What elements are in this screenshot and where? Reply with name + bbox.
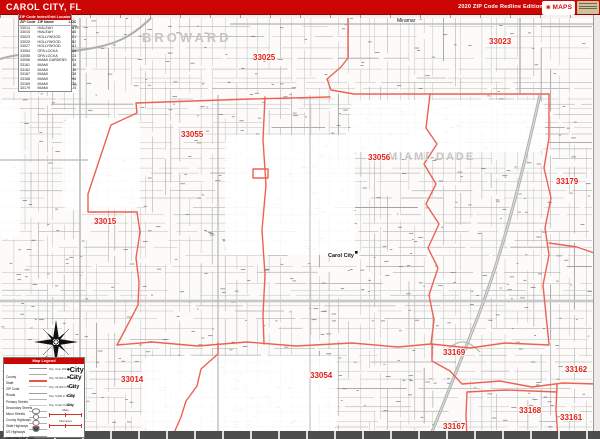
scalebar-kilometers: Kilometers: [49, 420, 82, 429]
zip-label-33056: 33056: [368, 153, 391, 162]
zip-label-33161: 33161: [560, 413, 583, 422]
header-bar: CAROL CITY, FL 2020 ZIP Code Redline Edi…: [0, 0, 600, 15]
zip-label-33015: 33015: [94, 217, 117, 226]
legend-row-toll-roads: Toll Roads: [6, 433, 48, 439]
county-label-broward: BROWARD: [142, 30, 232, 45]
zip-index-row: 33179MIAMIJ4: [19, 86, 77, 91]
scalebar-miles: Miles: [49, 409, 82, 418]
legend-city-item: Pop. 5,000 to 25,000City: [49, 392, 85, 401]
edition-label: 2020 ZIP Code Redline Edition: [458, 4, 543, 10]
zip-label-33023: 33023: [489, 37, 512, 46]
legend-city-item: Pop. Over 250,000•City: [49, 365, 85, 374]
zip-code-wall-map: BROWARDMIAMI-DADEMiramarCarol City330553…: [0, 0, 600, 439]
legend-panel: Map Legend CountyStateZIP CodeRoadsPrima…: [3, 357, 85, 438]
zip-label-33054: 33054: [310, 371, 333, 380]
legend-city-item: Pop. 50,000 to 250,000•City: [49, 374, 85, 383]
publisher-logo: ✷ MAPS: [542, 1, 575, 15]
right-margin-strip: [593, 14, 600, 431]
zip-index-column: LOC: [68, 20, 78, 25]
county-label-miami-dade: MIAMI-DADE: [388, 151, 475, 163]
legend-line-items: CountyStateZIP CodeRoadsPrimary StreetsS…: [6, 365, 48, 439]
zip-label-33162: 33162: [565, 365, 588, 374]
highway-shield-icon: [32, 408, 40, 414]
zip-index-header-row: ZIP CodeZIP NameLOC: [19, 20, 77, 25]
bottom-border-ruler: [0, 431, 600, 439]
city-label-carol-city: Carol City: [328, 253, 355, 259]
zip-label-33167: 33167: [443, 422, 466, 431]
zip-label-33055: 33055: [181, 130, 204, 139]
logo-burst-icon: ✷: [545, 4, 552, 12]
legend-city-item: Pop. 25,000 to 50,000•City: [49, 383, 85, 392]
map-title: CAROL CITY, FL: [6, 2, 81, 12]
legend-city-items: Pop. Over 250,000•CityPop. 50,000 to 250…: [49, 365, 85, 410]
city-label-miramar: Miramar: [397, 18, 416, 24]
legend-title: Map Legend: [4, 358, 84, 364]
zip-label-33169: 33169: [443, 348, 466, 357]
zip-label-33168: 33168: [519, 406, 542, 415]
zip-label-33025: 33025: [253, 53, 276, 62]
zip-index-panel: ZIP Code Index/Grid Locator ZIP CodeZIP …: [18, 14, 72, 92]
zip-label-33179: 33179: [556, 177, 579, 186]
logo-info-box: [577, 1, 599, 14]
logo-maps-text: MAPS: [553, 5, 573, 12]
map-canvas: BROWARDMIAMI-DADEMiramarCarol City330553…: [0, 0, 600, 439]
zip-label-33014: 33014: [121, 375, 144, 384]
zip-index-column: ZIP Code: [19, 20, 37, 25]
zip-index-table: ZIP CodeZIP NameLOC 33014HIALEAHB733015H…: [19, 20, 77, 91]
